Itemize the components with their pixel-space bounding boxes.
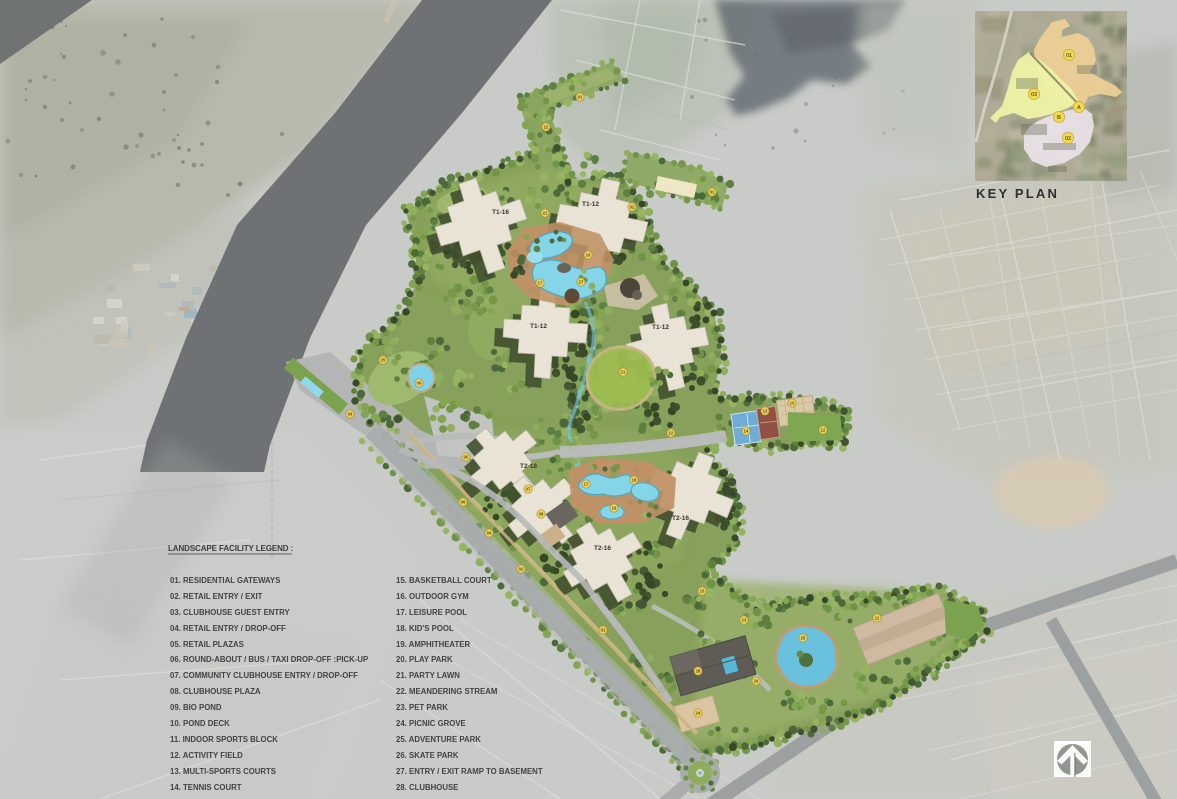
svg-text:06: 06 <box>348 412 353 417</box>
svg-text:T1-12: T1-12 <box>530 323 547 330</box>
svg-text:01: 01 <box>710 190 715 195</box>
svg-text:10: 10 <box>586 253 591 258</box>
svg-text:23. PET PARK: 23. PET PARK <box>396 703 448 712</box>
svg-text:04: 04 <box>487 531 492 536</box>
svg-text:12: 12 <box>821 428 826 433</box>
svg-text:26. SKATE PARK: 26. SKATE PARK <box>396 751 459 760</box>
svg-text:09: 09 <box>417 381 422 386</box>
svg-text:03: 03 <box>1031 92 1037 98</box>
svg-text:T2-18: T2-18 <box>520 463 537 470</box>
svg-text:T2-16: T2-16 <box>672 515 689 522</box>
svg-text:11. INDOOR SPORTS BLOCK: 11. INDOOR SPORTS BLOCK <box>170 735 278 744</box>
svg-text:10. POND DECK: 10. POND DECK <box>170 719 230 728</box>
svg-text:01: 01 <box>601 628 606 633</box>
svg-text:01. RESIDENTIAL GATEWAYS: 01. RESIDENTIAL GATEWAYS <box>170 576 280 585</box>
svg-text:25. ADVENTURE PARK: 25. ADVENTURE PARK <box>396 735 481 744</box>
svg-text:05. RETAIL PLAZAS: 05. RETAIL PLAZAS <box>170 640 244 649</box>
svg-text:27. ENTRY / EXIT RAMP TO BASEM: 27. ENTRY / EXIT RAMP TO BASEMENT <box>396 767 543 776</box>
svg-text:25: 25 <box>801 636 806 641</box>
svg-text:20. PLAY PARK: 20. PLAY PARK <box>396 655 453 664</box>
svg-text:01: 01 <box>578 95 583 100</box>
svg-text:08: 08 <box>539 512 544 517</box>
svg-text:21. PARTY LAWN: 21. PARTY LAWN <box>396 671 460 680</box>
svg-text:02: 02 <box>1065 136 1071 142</box>
svg-text:05: 05 <box>464 455 469 460</box>
svg-text:KEY PLAN: KEY PLAN <box>976 186 1059 201</box>
svg-text:LANDSCAPE FACILITY LEGEND :: LANDSCAPE FACILITY LEGEND : <box>168 544 293 553</box>
svg-text:01: 01 <box>1066 53 1072 59</box>
svg-text:24: 24 <box>696 711 701 716</box>
svg-text:T1-12: T1-12 <box>582 201 599 208</box>
svg-text:12. ACTIVITY FIELD: 12. ACTIVITY FIELD <box>170 751 243 760</box>
svg-text:T1-12: T1-12 <box>652 324 669 331</box>
svg-text:T2-16: T2-16 <box>594 545 611 552</box>
svg-text:15. BASKETBALL COURT: 15. BASKETBALL COURT <box>396 576 492 585</box>
svg-text:21: 21 <box>621 370 626 375</box>
svg-text:24. PICNIC GROVE: 24. PICNIC GROVE <box>396 719 466 728</box>
svg-text:16. OUTDOOR GYM: 16. OUTDOOR GYM <box>396 592 469 601</box>
svg-text:17: 17 <box>584 482 589 487</box>
svg-text:15: 15 <box>700 589 705 594</box>
svg-text:22: 22 <box>544 125 549 130</box>
svg-text:23: 23 <box>742 618 747 623</box>
svg-text:19: 19 <box>612 506 617 511</box>
svg-text:04. RETAIL ENTRY / DROP-OFF: 04. RETAIL ENTRY / DROP-OFF <box>170 624 286 633</box>
svg-text:13: 13 <box>763 409 768 414</box>
svg-text:06. ROUND-ABOUT / BUS / TAXI D: 06. ROUND-ABOUT / BUS / TAXI DROP-OFF :P… <box>170 655 368 664</box>
svg-text:12: 12 <box>669 431 674 436</box>
svg-text:06: 06 <box>461 500 466 505</box>
svg-text:A: A <box>1077 105 1081 111</box>
svg-text:27: 27 <box>579 280 584 285</box>
svg-text:11: 11 <box>875 616 880 621</box>
svg-text:18. KID'S POOL: 18. KID'S POOL <box>396 624 454 633</box>
svg-text:09. BIO POND: 09. BIO POND <box>170 703 222 712</box>
svg-text:13. MULTI-SPORTS COURTS: 13. MULTI-SPORTS COURTS <box>170 767 276 776</box>
svg-text:03. CLUBHOUSE GUEST ENTRY: 03. CLUBHOUSE GUEST ENTRY <box>170 608 291 617</box>
svg-text:02: 02 <box>630 205 635 210</box>
svg-text:07. COMMUNITY CLUBHOUSE ENTRY: 07. COMMUNITY CLUBHOUSE ENTRY / DROP-OFF <box>170 671 358 680</box>
svg-text:08. CLUBHOUSE PLAZA: 08. CLUBHOUSE PLAZA <box>170 687 261 696</box>
svg-text:22. MEANDERING STREAM: 22. MEANDERING STREAM <box>396 687 497 696</box>
svg-text:B: B <box>1057 115 1061 121</box>
svg-text:19. AMPHITHEATER: 19. AMPHITHEATER <box>396 640 470 649</box>
svg-text:T1-16: T1-16 <box>492 209 509 216</box>
svg-text:18: 18 <box>632 478 637 483</box>
svg-text:28: 28 <box>696 669 701 674</box>
svg-text:26: 26 <box>754 679 759 684</box>
svg-text:14: 14 <box>744 429 749 434</box>
svg-text:02. RETAIL ENTRY / EXIT: 02. RETAIL ENTRY / EXIT <box>170 592 263 601</box>
svg-text:28. CLUBHOUSE: 28. CLUBHOUSE <box>396 783 458 792</box>
svg-text:13: 13 <box>790 401 795 406</box>
svg-text:02: 02 <box>519 567 524 572</box>
svg-text:14. TENNIS COURT: 14. TENNIS COURT <box>170 783 242 792</box>
svg-text:17. LEISURE POOL: 17. LEISURE POOL <box>396 608 467 617</box>
svg-text:25: 25 <box>381 358 386 363</box>
svg-text:21: 21 <box>543 211 548 216</box>
svg-text:07: 07 <box>526 487 531 492</box>
svg-text:17: 17 <box>538 281 543 286</box>
